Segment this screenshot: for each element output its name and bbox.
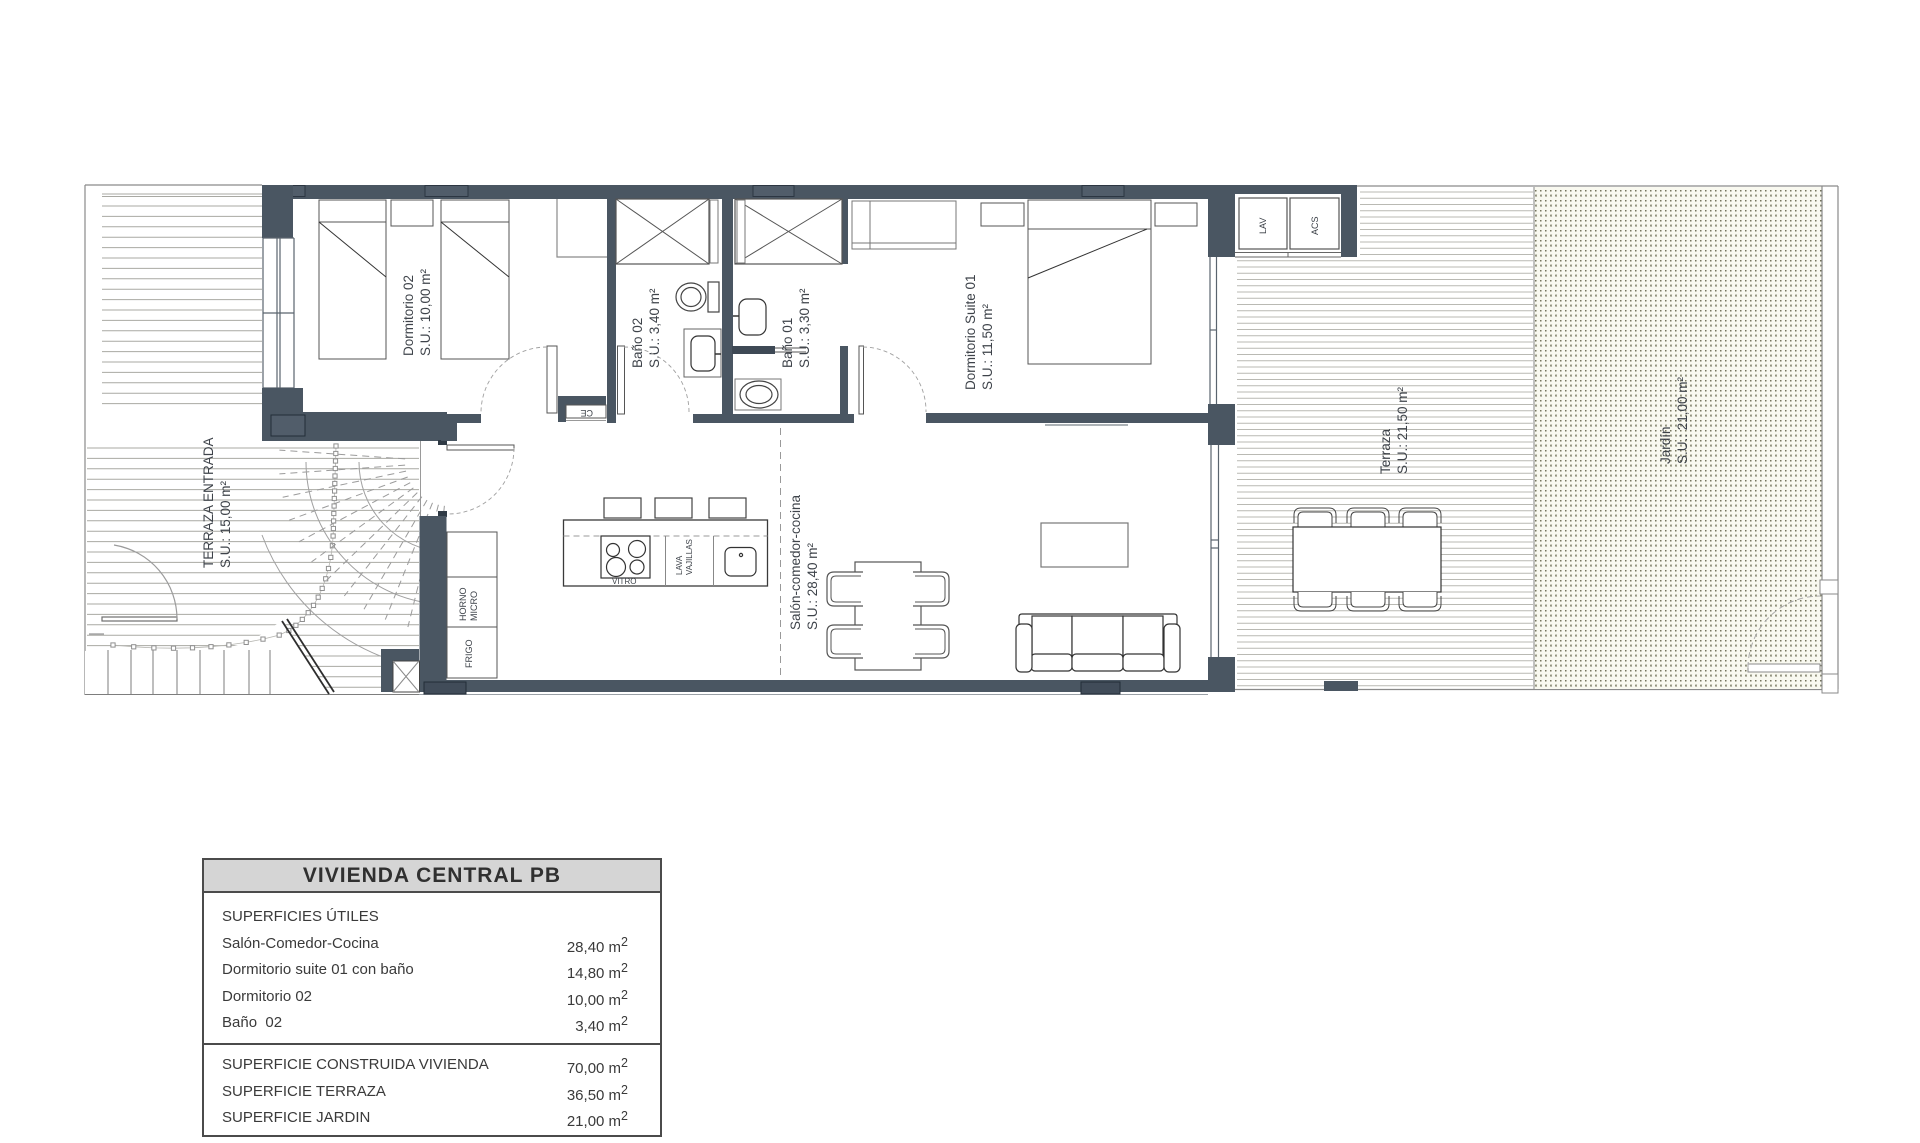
svg-text:LAVA: LAVA <box>675 555 684 575</box>
svg-text:CE: CE <box>580 408 593 418</box>
svg-text:S.U.: 11,50 m²: S.U.: 11,50 m² <box>980 303 995 390</box>
svg-text:S.U.: 3,40 m²: S.U.: 3,40 m² <box>647 288 662 368</box>
svg-text:FRIGO: FRIGO <box>464 640 474 669</box>
svg-text:S.U.: 28,40 m²: S.U.: 28,40 m² <box>805 542 820 630</box>
svg-text:Dormitorio Suite 01: Dormitorio Suite 01 <box>963 274 978 390</box>
svg-text:MICRO: MICRO <box>469 591 479 621</box>
svg-text:TERRAZA ENTRADA: TERRAZA ENTRADA <box>201 437 216 568</box>
svg-text:VAJILLAS: VAJILLAS <box>685 539 694 575</box>
svg-text:Baño 02: Baño 02 <box>630 318 645 368</box>
svg-text:VITRO: VITRO <box>612 577 636 586</box>
svg-text:ACS: ACS <box>1310 216 1320 235</box>
svg-text:Dormitorio 02: Dormitorio 02 <box>401 275 416 356</box>
svg-text:LAV: LAV <box>1258 218 1268 234</box>
svg-text:S.U.: 10,00 m²: S.U.: 10,00 m² <box>418 268 433 356</box>
svg-text:S.U.: 15,00 m²: S.U.: 15,00 m² <box>218 480 233 568</box>
svg-text:S.U.: 21,00 m²: S.U.: 21,00 m² <box>1675 376 1690 464</box>
svg-text:Salón-comedor-cocina: Salón-comedor-cocina <box>788 494 803 630</box>
svg-text:S.U.: 21,50 m²: S.U.: 21,50 m² <box>1395 386 1410 474</box>
svg-text:S.U.: 3,30 m²: S.U.: 3,30 m² <box>797 288 812 368</box>
svg-text:Jardín: Jardín <box>1658 426 1673 464</box>
svg-text:HORNO: HORNO <box>458 588 468 622</box>
svg-text:Terraza: Terraza <box>1378 428 1393 474</box>
svg-text:Baño 01: Baño 01 <box>780 318 795 368</box>
